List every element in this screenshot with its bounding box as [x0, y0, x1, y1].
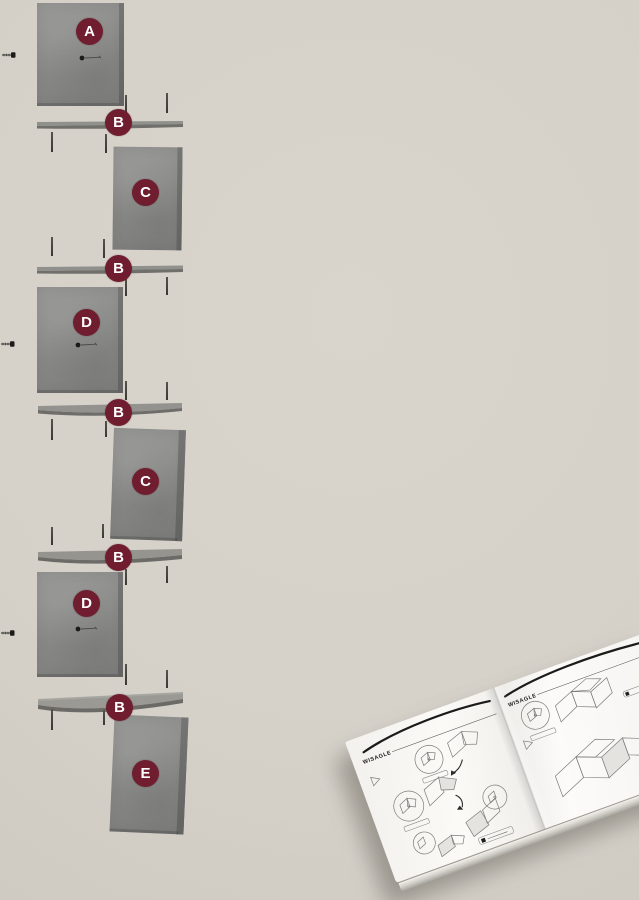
dowel-pin: [125, 381, 127, 400]
dowel-pin: [166, 277, 168, 295]
panel-edge: [110, 536, 177, 541]
panel-screw-icon: [79, 49, 103, 67]
panel-edge: [37, 390, 118, 393]
dowel-pin: [166, 382, 168, 400]
warning-triangle-icon: [371, 775, 382, 786]
brand-text: WISAGLE: [507, 693, 537, 709]
part-badge-a: A: [76, 18, 103, 45]
dowel-pin: [166, 670, 168, 688]
part-badge-d2: D: [73, 590, 100, 617]
dowel-pin: [51, 132, 53, 152]
panel-edge: [176, 717, 188, 834]
dowel-pin: [102, 524, 104, 538]
wall-screw-icon: [0, 624, 16, 642]
panel-screw-icon: [75, 620, 99, 638]
part-badge-b1: B: [105, 109, 132, 136]
dowel-pin: [103, 239, 105, 258]
dowel-pin: [51, 527, 53, 545]
part-badge-c2: C: [132, 468, 159, 495]
dowel-pin: [125, 664, 127, 685]
panel-edge: [37, 674, 118, 677]
panel-edge: [175, 430, 186, 541]
part-badge-d1: D: [73, 309, 100, 336]
panel-edge: [109, 828, 178, 834]
dowel-pin: [51, 709, 53, 730]
wall-screw-icon: [1, 46, 17, 64]
part-badge-e: E: [132, 760, 159, 787]
part-badge-b3: B: [105, 399, 132, 426]
panel-edge: [118, 572, 123, 677]
product-assembly-scene: A B C B D B C B D B E WISAGLE: [0, 0, 639, 900]
panel-edge: [176, 147, 182, 250]
dowel-pin: [51, 237, 53, 256]
dowel-pin: [105, 134, 107, 153]
instruction-booklet: WISAGLE: [345, 633, 639, 887]
dowel-pin: [51, 419, 53, 440]
wall-screw-icon: [0, 335, 16, 353]
panel-edge: [118, 287, 123, 393]
panel-edge: [37, 103, 119, 106]
part-badge-b5: B: [106, 694, 133, 721]
dowel-pin: [125, 569, 127, 585]
brand-text: WISAGLE: [362, 750, 392, 766]
dowel-pin: [125, 279, 127, 296]
part-badge-c1: C: [132, 179, 159, 206]
dowel-pin: [166, 93, 168, 113]
dowel-pin: [105, 421, 107, 437]
part-badge-b2: B: [105, 255, 132, 282]
panel-screw-icon: [75, 336, 99, 354]
dowel-pin: [103, 710, 105, 725]
dowel-pin: [166, 566, 168, 583]
part-badge-b4: B: [105, 544, 132, 571]
panel-edge: [119, 3, 124, 106]
